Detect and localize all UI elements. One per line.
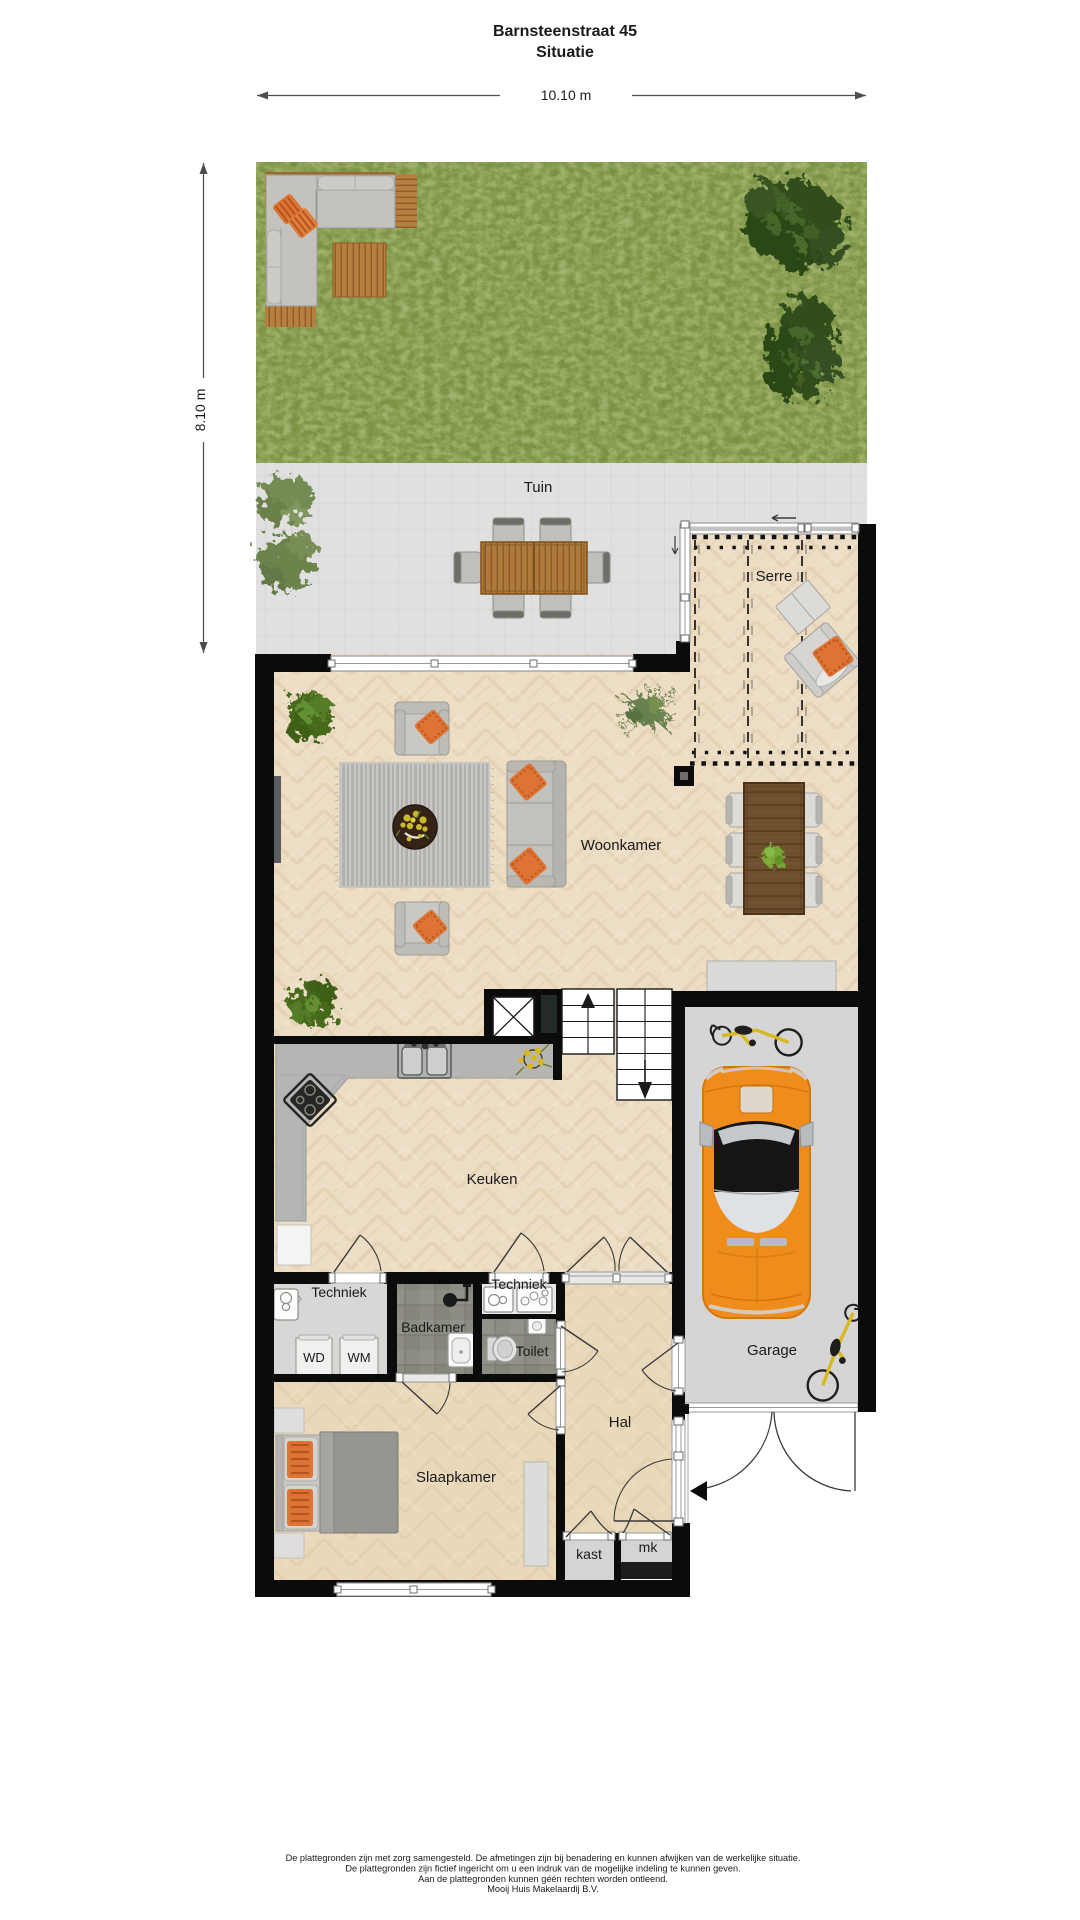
svg-text:Woonkamer: Woonkamer: [581, 837, 662, 854]
svg-text:mk: mk: [639, 1539, 659, 1555]
svg-text:Toilet: Toilet: [516, 1343, 549, 1359]
svg-text:Badkamer: Badkamer: [401, 1319, 465, 1335]
svg-text:10.10 m: 10.10 m: [541, 87, 592, 103]
svg-text:Barnsteenstraat 45: Barnsteenstraat 45: [493, 23, 637, 40]
svg-text:WD: WD: [303, 1350, 325, 1365]
svg-text:Mooij Huis Makelaardij B.V.: Mooij Huis Makelaardij B.V.: [487, 1884, 599, 1894]
svg-text:Garage: Garage: [747, 1342, 797, 1359]
svg-text:Aan de plattegronden kunnen gé: Aan de plattegronden kunnen géén rechten…: [418, 1874, 668, 1884]
svg-text:De plattegronden zijn fictief: De plattegronden zijn fictief ingericht …: [345, 1864, 740, 1874]
svg-text:Techniek: Techniek: [311, 1284, 367, 1300]
svg-text:Situatie: Situatie: [536, 44, 594, 61]
svg-text:Hal: Hal: [609, 1414, 632, 1431]
svg-text:Tuin: Tuin: [524, 479, 553, 496]
svg-text:Serre: Serre: [756, 568, 793, 585]
svg-text:WM: WM: [347, 1350, 370, 1365]
svg-text:Techniek: Techniek: [491, 1276, 547, 1292]
svg-text:8.10 m: 8.10 m: [192, 389, 208, 432]
svg-text:Slaapkamer: Slaapkamer: [416, 1469, 496, 1486]
svg-text:Keuken: Keuken: [467, 1171, 518, 1188]
svg-text:kast: kast: [576, 1546, 602, 1562]
svg-text:De plattegronden zijn met zorg: De plattegronden zijn met zorg samengest…: [286, 1853, 801, 1863]
